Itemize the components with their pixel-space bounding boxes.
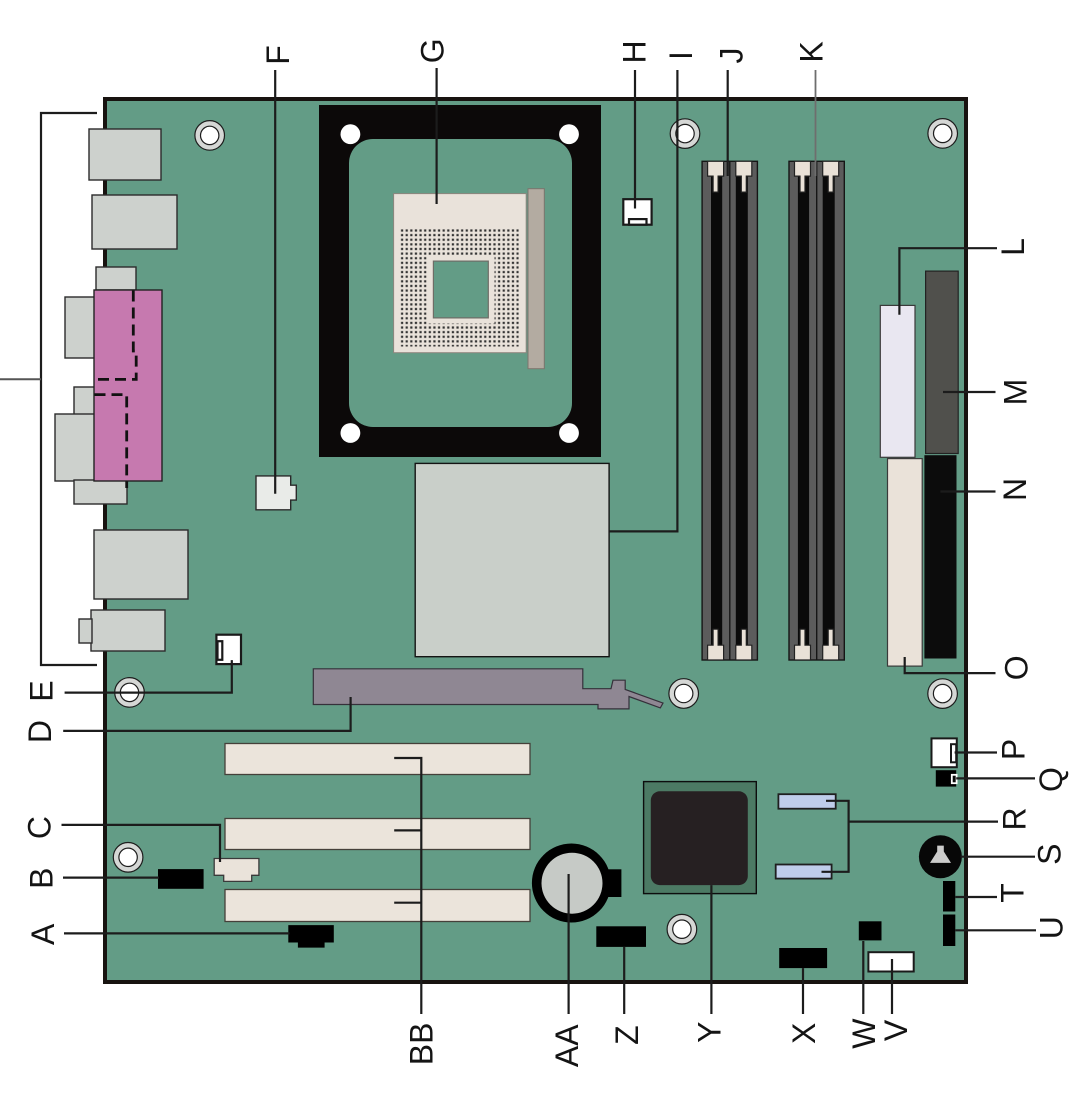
svg-text:V: V — [878, 1019, 914, 1041]
svg-text:N: N — [997, 478, 1033, 501]
svg-text:J: J — [714, 48, 750, 64]
svg-text:G: G — [415, 38, 451, 63]
svg-text:O: O — [999, 655, 1035, 680]
svg-text:W: W — [846, 1018, 882, 1049]
svg-text:AA: AA — [549, 1024, 585, 1067]
svg-text:M: M — [998, 379, 1034, 406]
svg-text:S: S — [1031, 844, 1067, 865]
svg-text:H: H — [616, 40, 652, 63]
svg-text:D: D — [22, 720, 58, 743]
svg-text:U: U — [1033, 916, 1069, 939]
svg-text:B: B — [24, 868, 60, 889]
svg-text:Q: Q — [1033, 767, 1069, 792]
svg-text:Y: Y — [692, 1022, 728, 1043]
svg-text:L: L — [995, 238, 1031, 256]
svg-text:X: X — [786, 1023, 822, 1044]
svg-text:A: A — [25, 923, 61, 945]
svg-text:C: C — [22, 816, 58, 839]
svg-text:P: P — [996, 739, 1032, 760]
svg-text:E: E — [23, 680, 59, 701]
svg-text:Z: Z — [609, 1025, 645, 1045]
svg-text:R: R — [997, 807, 1033, 830]
svg-text:F: F — [260, 45, 296, 65]
svg-text:T: T — [995, 883, 1031, 903]
svg-text:BB: BB — [403, 1023, 439, 1066]
svg-text:I: I — [663, 51, 699, 60]
svg-text:K: K — [794, 41, 830, 62]
